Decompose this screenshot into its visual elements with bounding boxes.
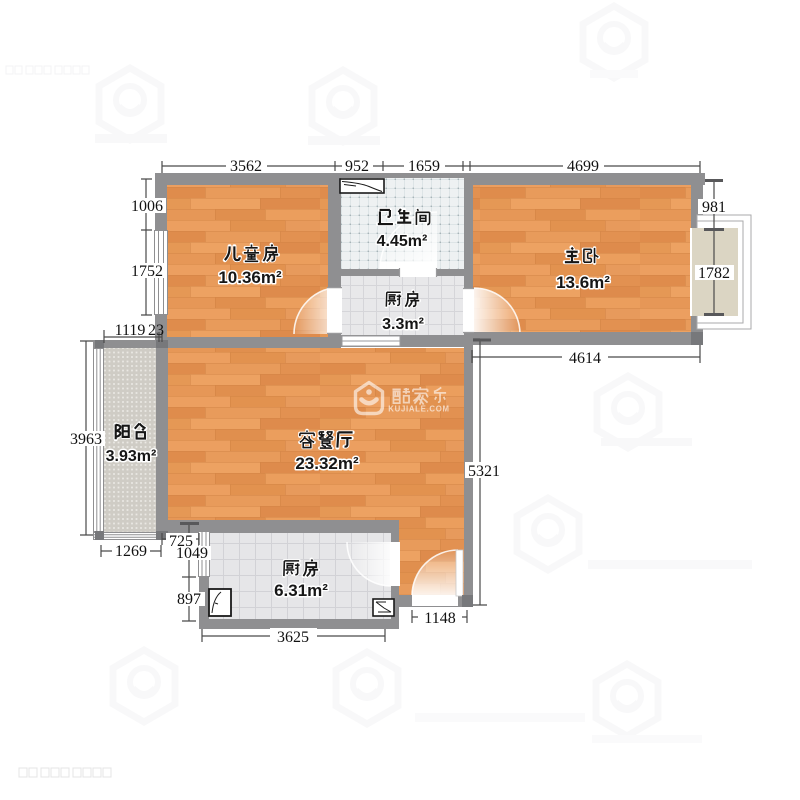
svg-text:981: 981	[702, 199, 726, 216]
svg-text:4614: 4614	[569, 350, 601, 367]
svg-text:1782: 1782	[698, 265, 730, 282]
svg-text:23: 23	[148, 322, 164, 339]
svg-text:13.6m²: 13.6m²	[556, 273, 610, 292]
svg-text:897: 897	[177, 591, 201, 608]
svg-text:3.3m²: 3.3m²	[382, 316, 424, 333]
svg-text:KUJIALE.COM: KUJIALE.COM	[388, 405, 449, 414]
svg-text:1148: 1148	[424, 610, 455, 627]
svg-text:10.36m²: 10.36m²	[218, 268, 282, 287]
svg-text:1659: 1659	[408, 158, 440, 175]
svg-text:3625: 3625	[277, 629, 309, 646]
svg-text:23.32m²: 23.32m²	[295, 454, 359, 473]
svg-text:1006: 1006	[131, 198, 163, 215]
svg-text:3.93m²: 3.93m²	[106, 448, 157, 465]
svg-text:1752: 1752	[131, 263, 163, 280]
svg-text:6.31m²: 6.31m²	[274, 581, 328, 600]
svg-text:3963: 3963	[70, 431, 102, 448]
svg-text:3562: 3562	[230, 158, 262, 175]
svg-text:1269: 1269	[115, 543, 147, 560]
svg-text:4.45m²: 4.45m²	[377, 233, 428, 250]
svg-text:1119: 1119	[115, 322, 146, 339]
svg-text:4699: 4699	[567, 158, 599, 175]
svg-text:952: 952	[345, 158, 369, 175]
svg-text:1049: 1049	[176, 545, 208, 562]
svg-text:5321: 5321	[468, 463, 500, 480]
